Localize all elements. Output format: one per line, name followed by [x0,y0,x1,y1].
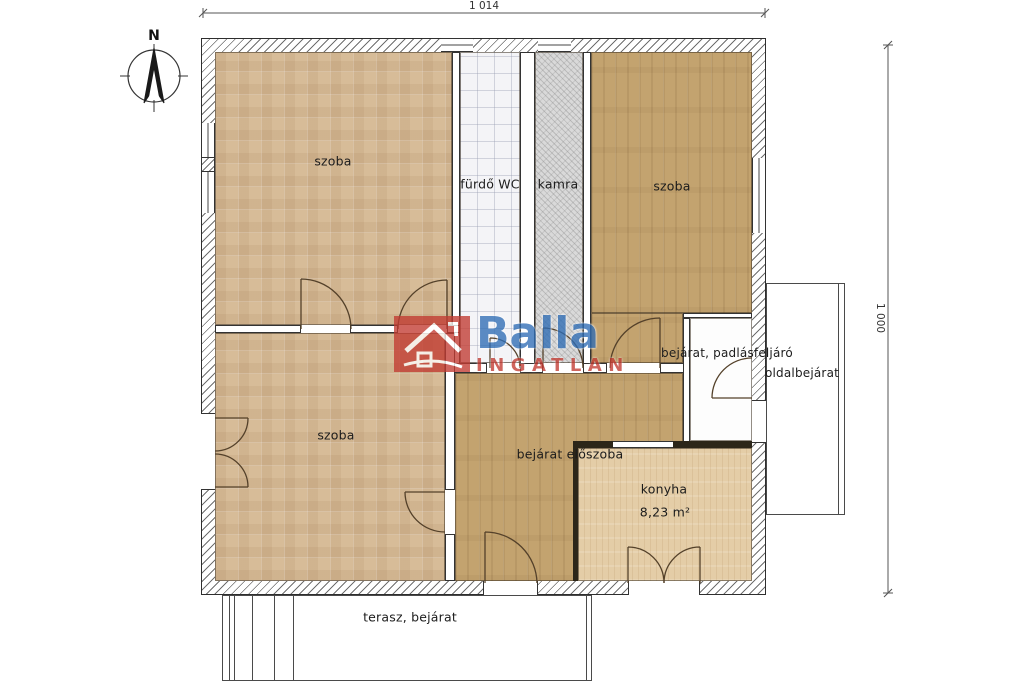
room-label: bejárat előszoba [517,447,624,462]
window-top-pantry [538,38,571,52]
dimension-width-label: 1 014 [469,0,499,12]
room-label: fürdő WC [460,177,520,192]
compass-north-label: N [148,28,160,44]
north-compass-icon [120,44,188,112]
wall-sw-hall-seg2 [445,534,455,581]
room-label: bejárat, padlásfeljáró [661,346,793,360]
room-szoba-nw [215,52,452,325]
room-label: szoba [314,154,351,169]
room-label: oldalbejárat [765,366,839,380]
porch-edge-line [838,284,839,514]
room-label: terasz, bejárat [363,610,457,625]
wall-entry-west [683,318,690,448]
watermark-brand: Balla [476,316,630,352]
door-opening [445,490,455,534]
house-logo-icon [394,316,470,372]
side-entrance-porch [766,283,845,515]
dimension-height-label: 1 000 [874,303,886,333]
wall-entry-north [683,313,752,318]
terrace-step-line [229,596,230,680]
room-label: konyha [641,482,688,497]
terrace-edge-line [586,596,587,680]
terrace-step-line [274,596,275,680]
room-label: szoba [317,428,354,443]
watermark-logo: Balla INGATLAN [394,316,630,376]
door-opening-main-entrance [483,581,538,595]
room-entry-attic [690,318,752,441]
door-opening-kitchen-terrace [628,581,700,595]
wall-nw-sw-seg2 [350,325,398,333]
door-opening [301,325,350,333]
room-label: szoba [653,179,690,194]
room-label: kamra [538,177,579,192]
watermark-text: Balla INGATLAN [476,316,630,376]
floorplan-page: szoba fürdő WC kamra szoba szoba bejárat… [0,0,1023,691]
room-area-label: 8,23 m² [640,505,690,520]
window-top-bathroom [441,38,473,52]
terrace [222,595,592,681]
terrace-step-line [293,596,294,680]
terrace-step-line [234,596,235,680]
door-opening-left-terrace [201,413,215,490]
window-right-szoba-ne [752,158,766,233]
door-opening-side-entrance [752,400,766,443]
terrace-step-line [252,596,253,680]
wall-kitchen-left [573,448,578,581]
wall-nw-sw-seg1 [215,325,301,333]
watermark-subtitle: INGATLAN [476,355,630,376]
window-mullion [201,157,215,172]
